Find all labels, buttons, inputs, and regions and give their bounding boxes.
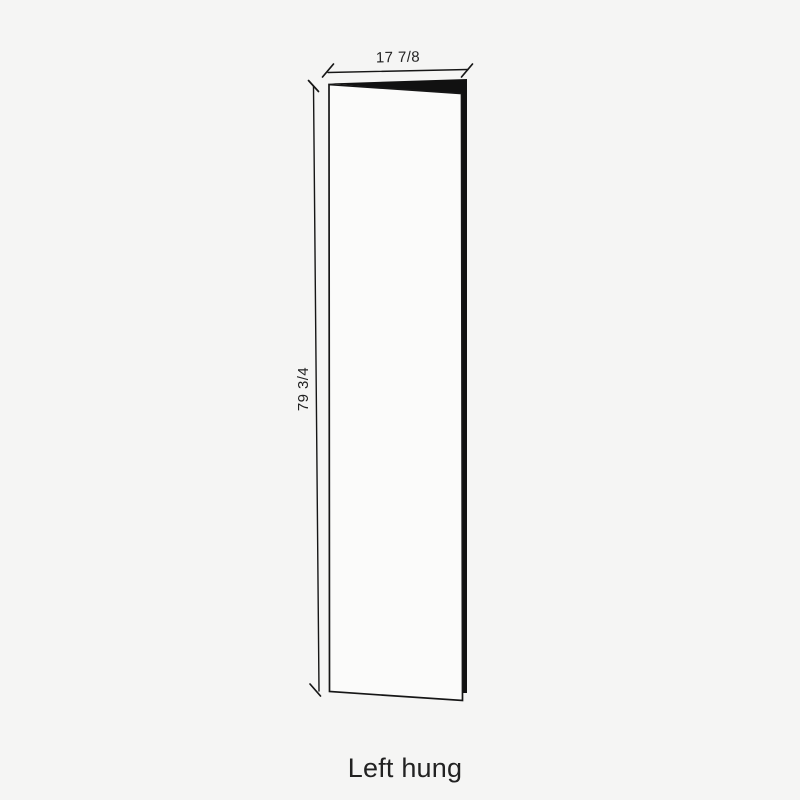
height-dimension-label: 79 3/4	[294, 344, 314, 434]
height-dimension-line	[314, 87, 320, 692]
caption-label: Left hung	[300, 753, 510, 784]
door-drawing	[0, 0, 800, 800]
width-dimension-tick-right	[462, 64, 473, 77]
width-dimension-line	[328, 70, 468, 73]
width-dimension-label: 17 7/8	[328, 47, 468, 67]
door-front-face	[329, 85, 463, 701]
diagram-canvas: 17 7/8 79 3/4 Left hung	[0, 0, 800, 800]
